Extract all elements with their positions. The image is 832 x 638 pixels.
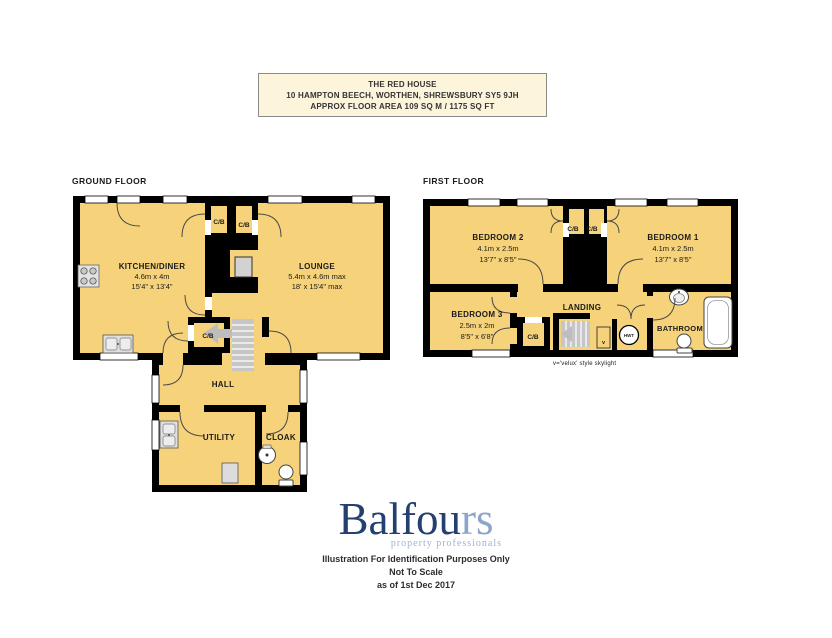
floorplan-page: THE RED HOUSE 10 HAMPTON BEECH, WORTHEN,… (0, 0, 832, 638)
hob-icon (78, 265, 99, 287)
logo-text-light: rs (461, 494, 494, 544)
kitchen-diner-metric: 4.6m x 4m (134, 272, 169, 281)
bedroom3-imperial: 8'5" x 6'8" (461, 332, 494, 341)
property-address: 10 HAMPTON BEECH, WORTHEN, SHREWSBURY SY… (259, 90, 546, 101)
lounge-metric: 5.4m x 4.6m max (288, 272, 346, 281)
floor-area: APPROX FLOOR AREA 109 SQ M / 1175 SQ FT (259, 101, 546, 112)
hot-water-tank-icon: HWT (620, 326, 639, 345)
disclaimer-line: Illustration For Identification Purposes… (216, 553, 616, 566)
first-floor-label: FIRST FLOOR (423, 176, 484, 186)
bedroom1-label: BEDROOM 1 (647, 233, 698, 242)
kitchen-diner-imperial: 15'4" x 13'4" (131, 282, 172, 291)
scale-line: Not To Scale (216, 566, 616, 579)
date-line: as of 1st Dec 2017 (216, 579, 616, 592)
cb-closet-label: C/B (213, 219, 225, 226)
bathroom-basin-icon (670, 289, 689, 305)
kitchen-diner-label: KITCHEN/DINER (119, 262, 186, 271)
utility-label: UTILITY (203, 433, 236, 442)
bedroom1-imperial: 13'7" x 8'5" (655, 255, 692, 264)
landing-label: LANDING (563, 303, 602, 312)
footer-disclaimer: Illustration For Identification Purposes… (216, 553, 616, 592)
cb-closet-label: C/B (238, 222, 250, 229)
bedroom1-metric: 4.1m x 2.5m (652, 244, 693, 253)
cb-closet-label: C/B (527, 334, 539, 341)
kitchen-sink-icon (103, 335, 133, 353)
bedroom2-label: BEDROOM 2 (472, 233, 523, 242)
stove-icon (235, 257, 252, 277)
logo-text-dark: Balfou (339, 494, 461, 544)
cb-closet-label: C/B (586, 226, 598, 233)
property-name: THE RED HOUSE (259, 79, 546, 90)
bedroom2-imperial: 13'7" x 8'5" (480, 255, 517, 264)
bedroom3-metric: 2.5m x 2m (459, 321, 494, 330)
bedroom2-metric: 4.1m x 2.5m (477, 244, 518, 253)
hwt-label: HWT (624, 333, 634, 338)
utility-sink-icon (160, 421, 178, 448)
bedroom3-label: BEDROOM 3 (451, 310, 502, 319)
bathroom-label: BATHROOM (657, 324, 703, 333)
bathroom-toilet-icon (677, 334, 692, 353)
first-floor-plan: v HWT (420, 193, 745, 373)
cloak-label: CLOAK (266, 433, 296, 442)
logo-tagline: property professionals (216, 538, 502, 549)
lounge-label: LOUNGE (299, 262, 335, 271)
appliance-icon (222, 463, 238, 483)
hall-label: HALL (212, 380, 235, 389)
cloak-toilet-icon (279, 465, 293, 486)
bath-icon (704, 297, 732, 348)
ground-floor-label: GROUND FLOOR (72, 176, 147, 186)
staircase-first-icon (561, 321, 590, 347)
cb-closet-label: C/B (202, 333, 214, 340)
title-box: THE RED HOUSE 10 HAMPTON BEECH, WORTHEN,… (258, 73, 547, 117)
balfours-logo: Balfours (216, 496, 616, 542)
lounge-imperial: 18' x 15'4" max (292, 282, 343, 291)
cb-closet-label: C/B (567, 226, 579, 233)
ground-floor-plan: KITCHEN/DINER 4.6m x 4m 15'4" x 13'4" LO… (70, 193, 395, 503)
skylight-note: v='velux' style skylight (553, 361, 616, 367)
